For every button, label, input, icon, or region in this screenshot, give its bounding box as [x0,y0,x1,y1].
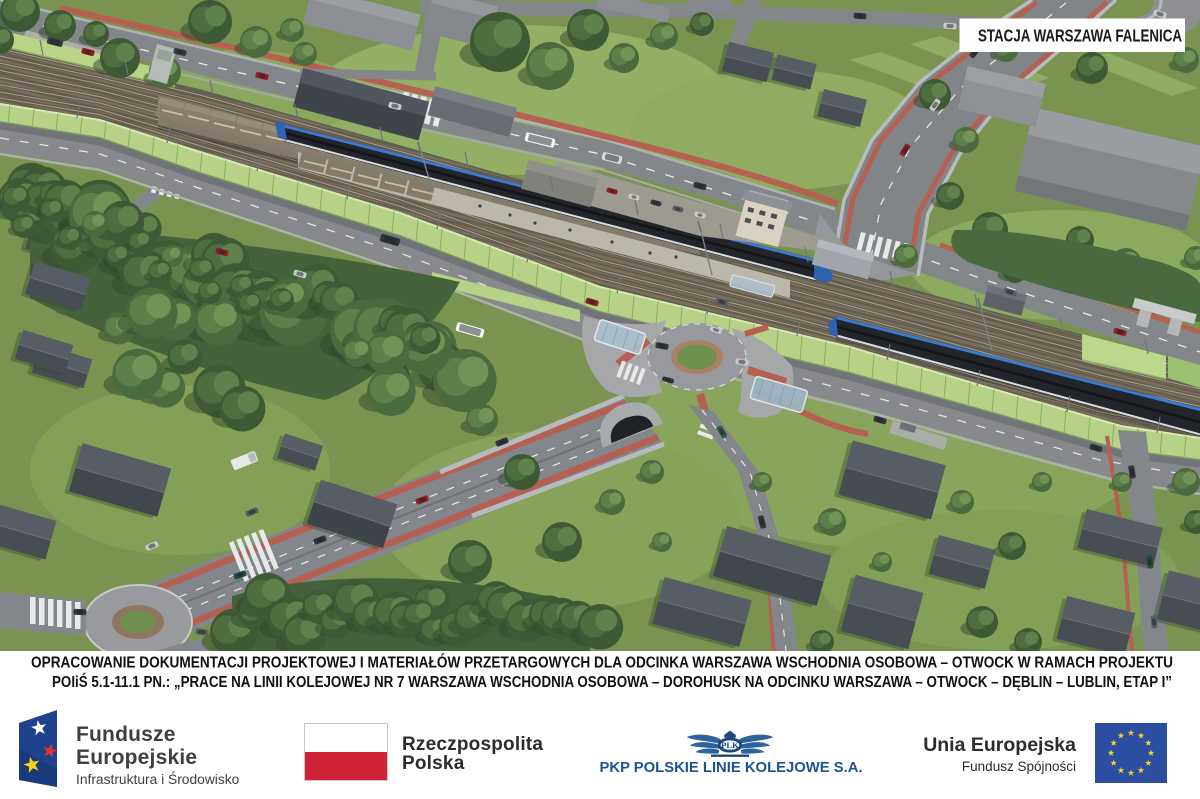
svg-text:PLK: PLK [721,740,739,750]
svg-text:POIiŚ 5.1-11.1 PN.: „PRACE NA: POIiŚ 5.1-11.1 PN.: „PRACE NA LINII KOLE… [52,673,1172,691]
svg-text:PKP POLSKIE LINIE KOLEJOWE S.A: PKP POLSKIE LINIE KOLEJOWE S.A. [600,759,863,776]
svg-text:OPRACOWANIE DOKUMENTACJI PROJE: OPRACOWANIE DOKUMENTACJI PROJEKTOWEJ I M… [31,653,1173,671]
svg-text:STACJA WARSZAWA FALENICA: STACJA WARSZAWA FALENICA [978,26,1182,46]
